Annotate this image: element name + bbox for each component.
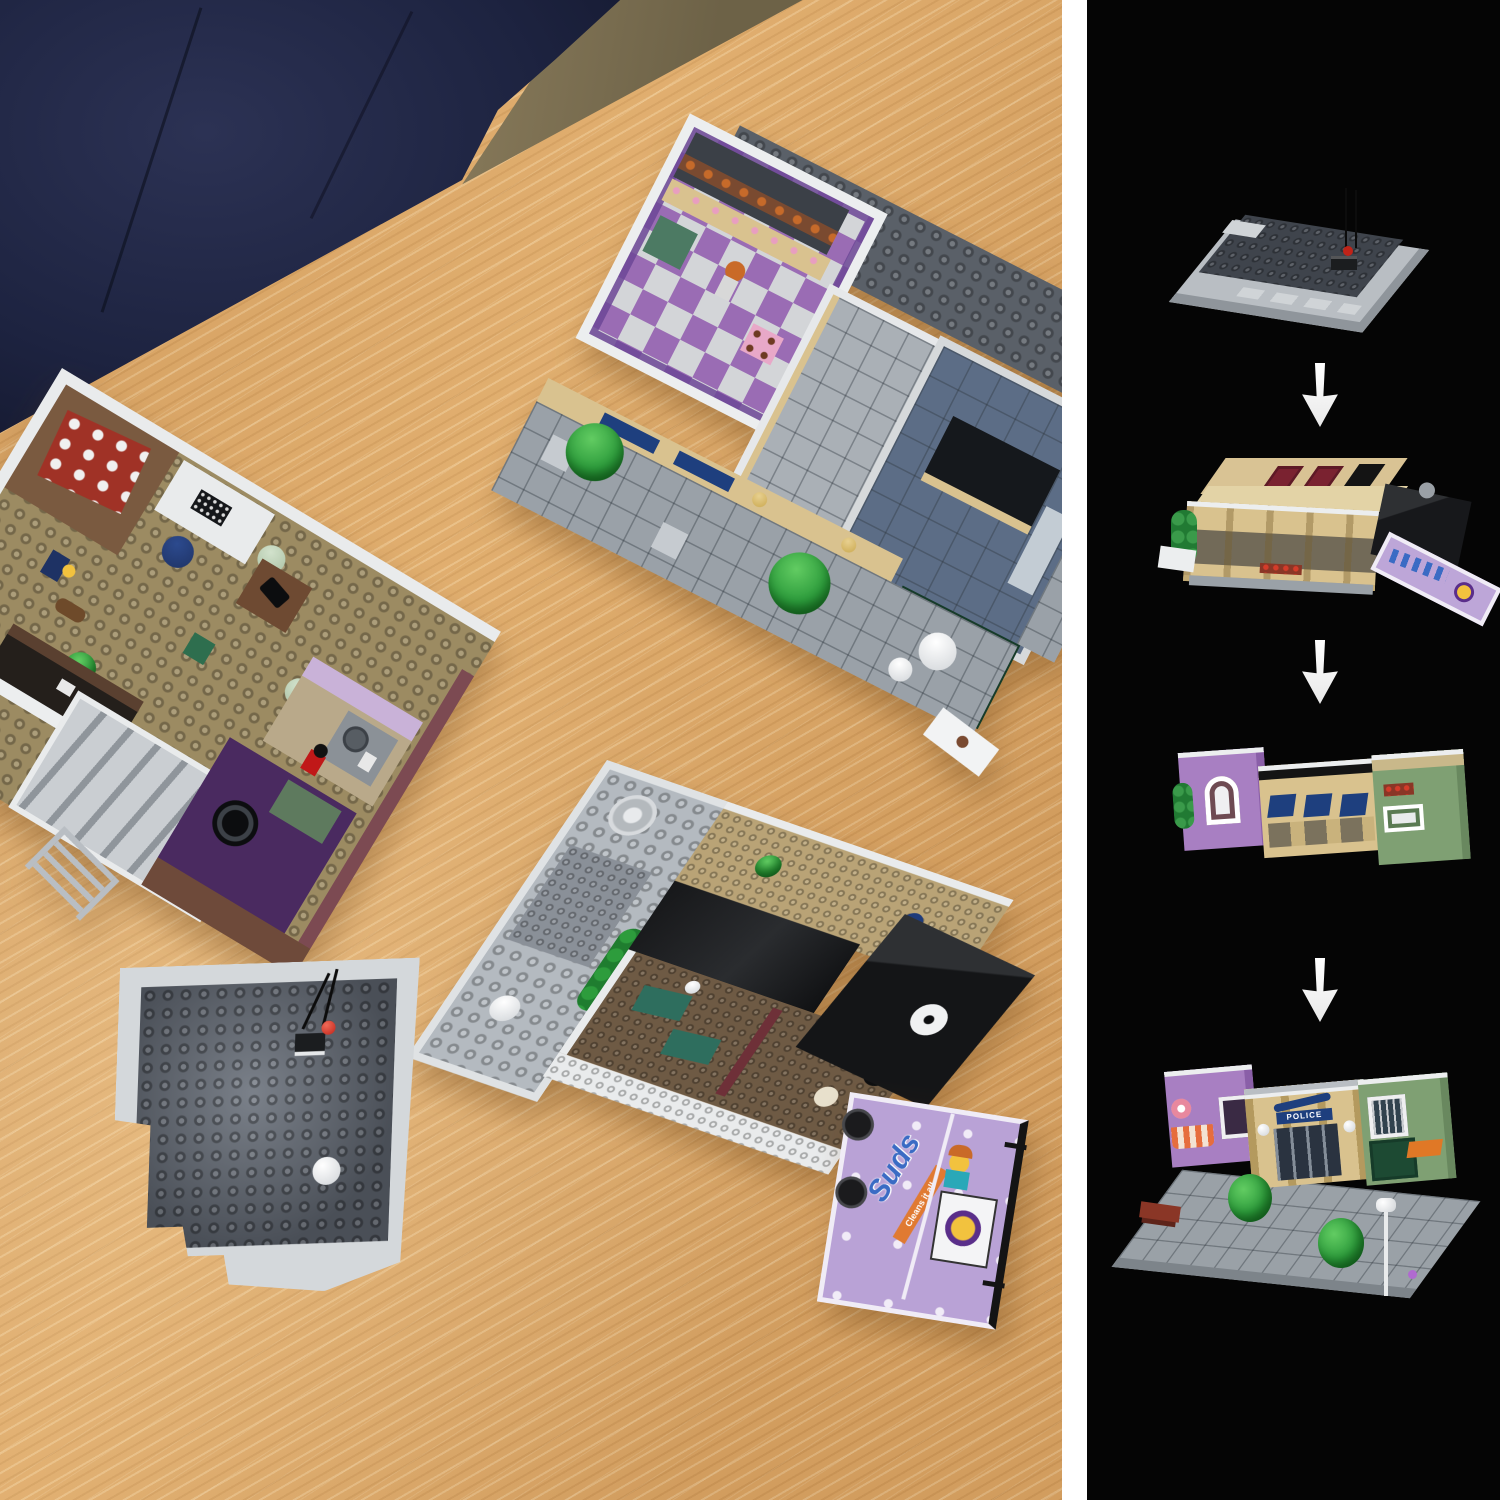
control-box: [1331, 256, 1357, 270]
sign-minifig-shirt: [943, 1169, 970, 1191]
tan-facade-section: [1258, 758, 1386, 858]
teal-bed: [660, 1029, 721, 1065]
stove: [321, 710, 399, 786]
silver-dome: [599, 789, 666, 841]
pink-table: [740, 323, 784, 365]
sticker: [357, 751, 377, 772]
green-bin: [642, 215, 698, 270]
gold-lamp: [839, 535, 859, 555]
orange-awning: [1407, 1139, 1443, 1158]
ivy-vine: [1172, 782, 1195, 829]
washing-machine-graphic: [930, 1190, 998, 1268]
typewriter: [190, 489, 232, 526]
purple-balloon: [1408, 1270, 1417, 1279]
step-3-upper-floor: [1155, 718, 1475, 908]
antenna-base-box: [295, 1033, 326, 1052]
telephone: [259, 576, 291, 609]
balcony: [1383, 804, 1425, 833]
navy-awning: [1339, 793, 1368, 817]
navy-awning: [1303, 793, 1332, 817]
tree: [1228, 1174, 1272, 1222]
cafe-chair: [884, 653, 916, 685]
antenna-rod: [1355, 190, 1357, 248]
down-arrow-icon: [1292, 363, 1348, 427]
donut-shop-awning: [1171, 1124, 1215, 1150]
washer-door: [942, 1208, 983, 1249]
antenna-red-light: [1343, 246, 1353, 256]
arched-window: [1203, 775, 1240, 825]
paper: [56, 678, 76, 697]
green-bin: [183, 632, 216, 665]
sidewalk-base: [1112, 1170, 1481, 1299]
phone-table: [236, 558, 312, 632]
facade-windows: [1268, 816, 1375, 847]
police-dog: [53, 596, 88, 625]
step-1-foundation: [1187, 188, 1417, 338]
green-section: [1358, 1072, 1457, 1185]
chair-seam: [310, 11, 414, 219]
down-arrow-icon: [1292, 958, 1348, 1022]
window-box: [1383, 782, 1414, 796]
gold-lamp: [750, 490, 770, 510]
banner-dot: [1451, 579, 1478, 606]
dark-red-wall: [715, 1008, 782, 1097]
sign-frame-leg: [1004, 1142, 1027, 1150]
sink: [682, 979, 703, 996]
roof-plate: [132, 978, 397, 1249]
small-plant: [750, 852, 787, 880]
step-2-ground-floor: [1155, 452, 1475, 630]
step-4-finished-building: POLICE: [1140, 1032, 1460, 1310]
window-box-flowers: [1260, 563, 1302, 575]
cafe-table: [912, 626, 963, 677]
beige-cylinder: [809, 1084, 843, 1110]
office-desk: [921, 416, 1061, 535]
coffee-cup: [954, 733, 971, 750]
red-ladder-shelf: [37, 410, 151, 514]
white-cylinder: [483, 992, 526, 1025]
white-base-piece: [1158, 546, 1197, 573]
purple-section: [1178, 747, 1271, 851]
build-steps-panel: POLICE: [1087, 0, 1500, 1500]
street-lamp: [1384, 1208, 1388, 1296]
laundromat-billboard: Suds Cleans it all: [817, 1092, 1029, 1330]
barred-window: [1367, 1094, 1409, 1139]
down-arrow-icon: [1292, 640, 1348, 704]
machine-knob: [1417, 481, 1436, 500]
green-shelf: [269, 779, 342, 844]
glass-doors: [1273, 1123, 1341, 1180]
sidewalk-light-tile: [651, 522, 689, 560]
sign-frame-leg: [982, 1280, 1005, 1288]
police-station-front: POLICE: [1244, 1079, 1372, 1189]
lego-product-image: Suds Cleans it all: [0, 0, 1500, 1500]
antenna-rod: [1345, 188, 1347, 250]
street-lamp-cap: [1376, 1198, 1396, 1212]
navy-office-chair: [156, 530, 200, 574]
teal-bed: [631, 985, 692, 1021]
navy-awning: [1267, 794, 1296, 818]
white-dish: [903, 999, 956, 1041]
turntable: [204, 792, 267, 855]
photo-table-scene: Suds Cleans it all: [0, 0, 1062, 1500]
panel-divider: [1062, 0, 1087, 1500]
green-section: [1371, 749, 1470, 865]
chair-seam: [101, 7, 203, 312]
donut-sign: [1170, 1098, 1192, 1120]
entrance-lamp: [1343, 1120, 1356, 1133]
entrance-lamp: [1257, 1123, 1270, 1136]
tree: [1318, 1218, 1364, 1268]
